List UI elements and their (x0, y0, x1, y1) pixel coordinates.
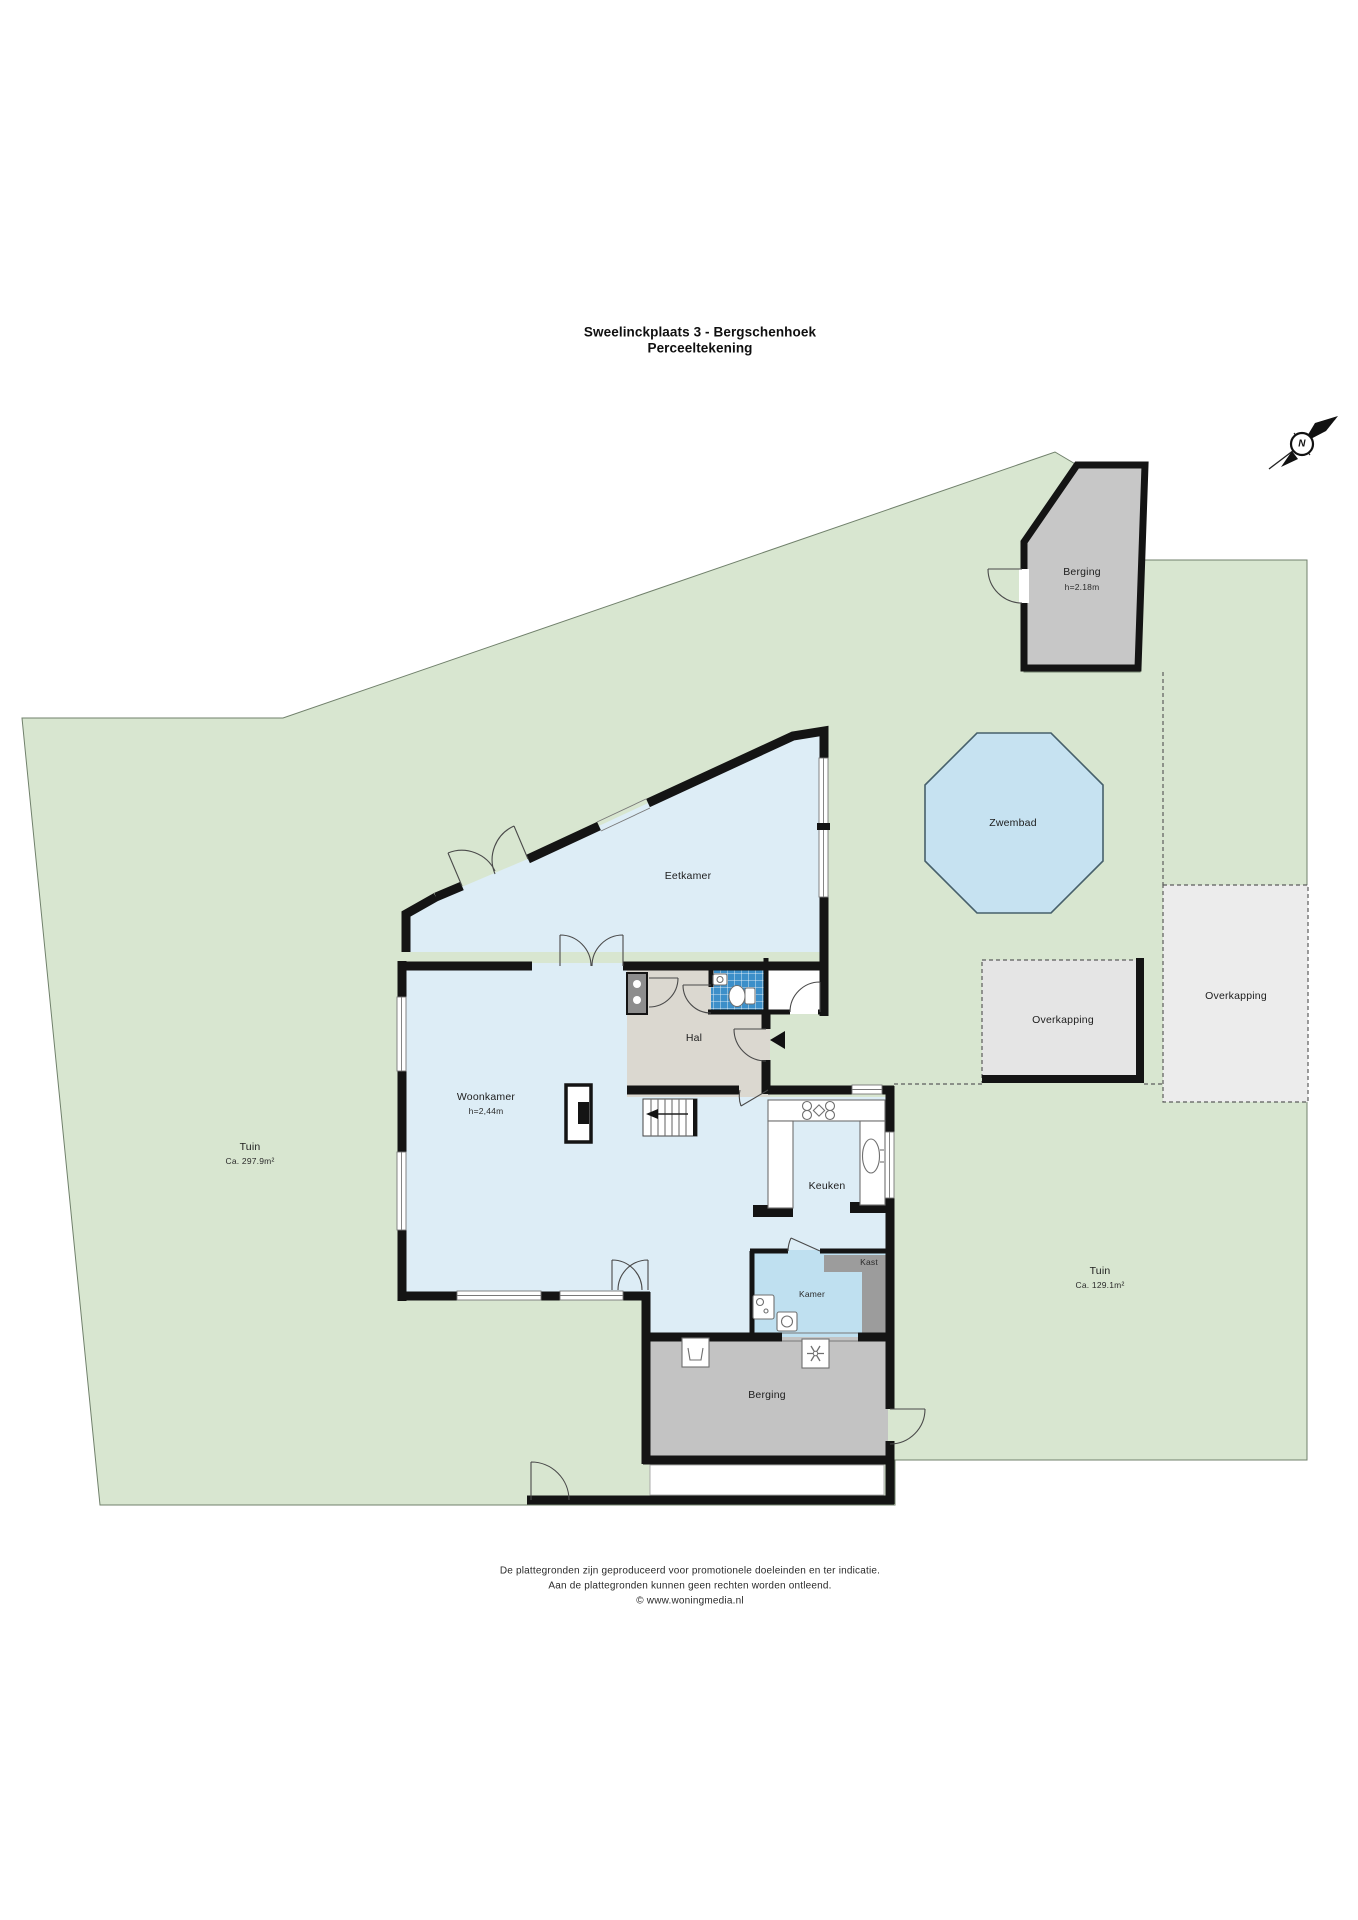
footer-line1: De plattegronden zijn geproduceerd voor … (500, 1566, 880, 1577)
floorplan-drawing (0, 0, 1358, 1920)
meter-closet (627, 973, 647, 1014)
canopy-right-label: Overkapping (1205, 990, 1267, 1002)
pool-label: Zwembad (989, 817, 1037, 829)
garden-right-area: Ca. 129.1m² (1076, 1280, 1125, 1290)
staircase (643, 1099, 697, 1136)
footer-line3: © www.woningmedia.nl (636, 1596, 744, 1607)
compass-north-label: N (1298, 439, 1305, 450)
canopy-left-label: Overkapping (1032, 1014, 1094, 1026)
dryer-icon (777, 1312, 797, 1331)
garden-left-area: Ca. 297.9m² (226, 1156, 275, 1166)
garden-right-label: Tuin (1090, 1265, 1111, 1277)
page-title-line2: Perceeltekening (647, 341, 752, 356)
room-label-woonkamer: Woonkamer (457, 1091, 515, 1103)
washer-icon (753, 1295, 774, 1319)
room-label-woonkamer-height: h=2,44m (469, 1106, 504, 1116)
garden-left-label: Tuin (240, 1141, 261, 1153)
room-label-eetkamer: Eetkamer (665, 870, 712, 882)
laundry-tub-icon (682, 1338, 709, 1367)
room-label-kast: Kast (860, 1257, 878, 1267)
terrace-strip (650, 1465, 884, 1495)
vestibule-floor (766, 963, 824, 1014)
room-label-berging: Berging (748, 1389, 786, 1401)
room-label-kamer: Kamer (799, 1289, 825, 1299)
toilet-icon (729, 986, 755, 1007)
footer-line2: Aan de plattegronden kunnen geen rechten… (548, 1581, 831, 1592)
sink-icon (713, 974, 727, 985)
shed-label: Berging (1063, 566, 1101, 578)
hvac-fan-icon (802, 1339, 829, 1368)
shed-height-label: h=2.18m (1065, 582, 1100, 592)
floorplan-page: Sweelinckplaats 3 - Bergschenhoek Percee… (0, 0, 1358, 1920)
room-label-keuken: Keuken (809, 1180, 846, 1192)
page-title-line1: Sweelinckplaats 3 - Bergschenhoek (584, 325, 816, 340)
fireplace (566, 1085, 591, 1142)
room-label-hal: Hal (686, 1032, 702, 1044)
